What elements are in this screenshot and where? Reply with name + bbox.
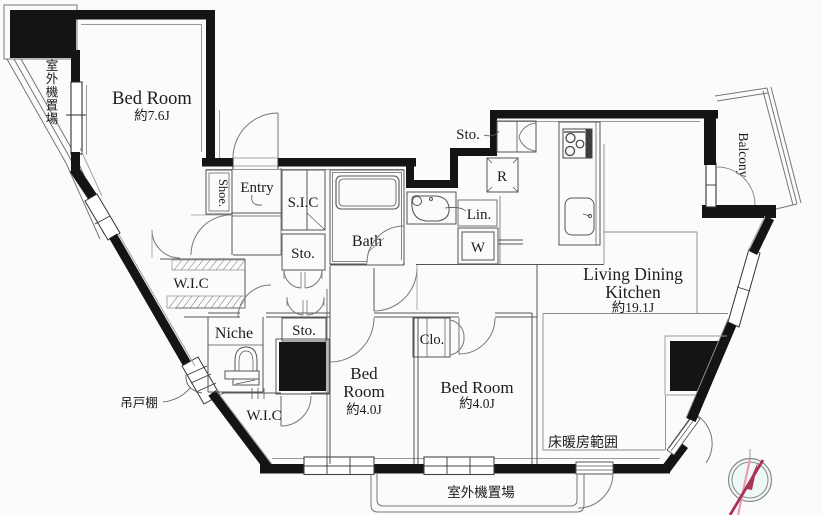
svg-text:室外機置場: 室外機置場: [46, 58, 59, 126]
svg-text:Shoe.: Shoe.: [216, 179, 230, 207]
svg-text:室外機置場: 室外機置場: [447, 484, 515, 500]
svg-text:W: W: [471, 240, 486, 256]
svg-text:Sto.: Sto.: [291, 246, 315, 262]
svg-text:Living Dining: Living Dining: [583, 264, 683, 284]
svg-text:S.I.C: S.I.C: [288, 195, 319, 211]
svg-text:R: R: [497, 169, 507, 185]
svg-text:Niche: Niche: [215, 325, 253, 342]
svg-text:Bed Room: Bed Room: [440, 378, 513, 397]
svg-text:約19.1J: 約19.1J: [612, 300, 654, 315]
svg-text:Room: Room: [343, 382, 385, 401]
svg-text:約4.0J: 約4.0J: [459, 396, 495, 411]
svg-text:約4.0J: 約4.0J: [346, 402, 382, 417]
svg-text:Bath: Bath: [352, 233, 382, 250]
svg-text:W.I.C: W.I.C: [246, 408, 281, 424]
svg-text:Bed: Bed: [350, 364, 378, 383]
svg-text:Bed Room: Bed Room: [112, 89, 192, 109]
svg-text:Clo.: Clo.: [420, 332, 445, 348]
svg-text:Sto.: Sto.: [456, 127, 480, 143]
svg-text:Balcony: Balcony: [736, 133, 751, 178]
svg-text:床暖房範囲: 床暖房範囲: [548, 434, 618, 451]
svg-text:約7.6J: 約7.6J: [134, 108, 170, 123]
svg-text:Sto.: Sto.: [292, 323, 316, 339]
svg-text:Kitchen: Kitchen: [605, 282, 661, 302]
svg-text:Lin.: Lin.: [467, 207, 492, 223]
svg-text:W.I.C: W.I.C: [173, 276, 208, 292]
svg-text:Entry: Entry: [240, 180, 274, 196]
svg-text:吊戸棚: 吊戸棚: [120, 395, 158, 410]
